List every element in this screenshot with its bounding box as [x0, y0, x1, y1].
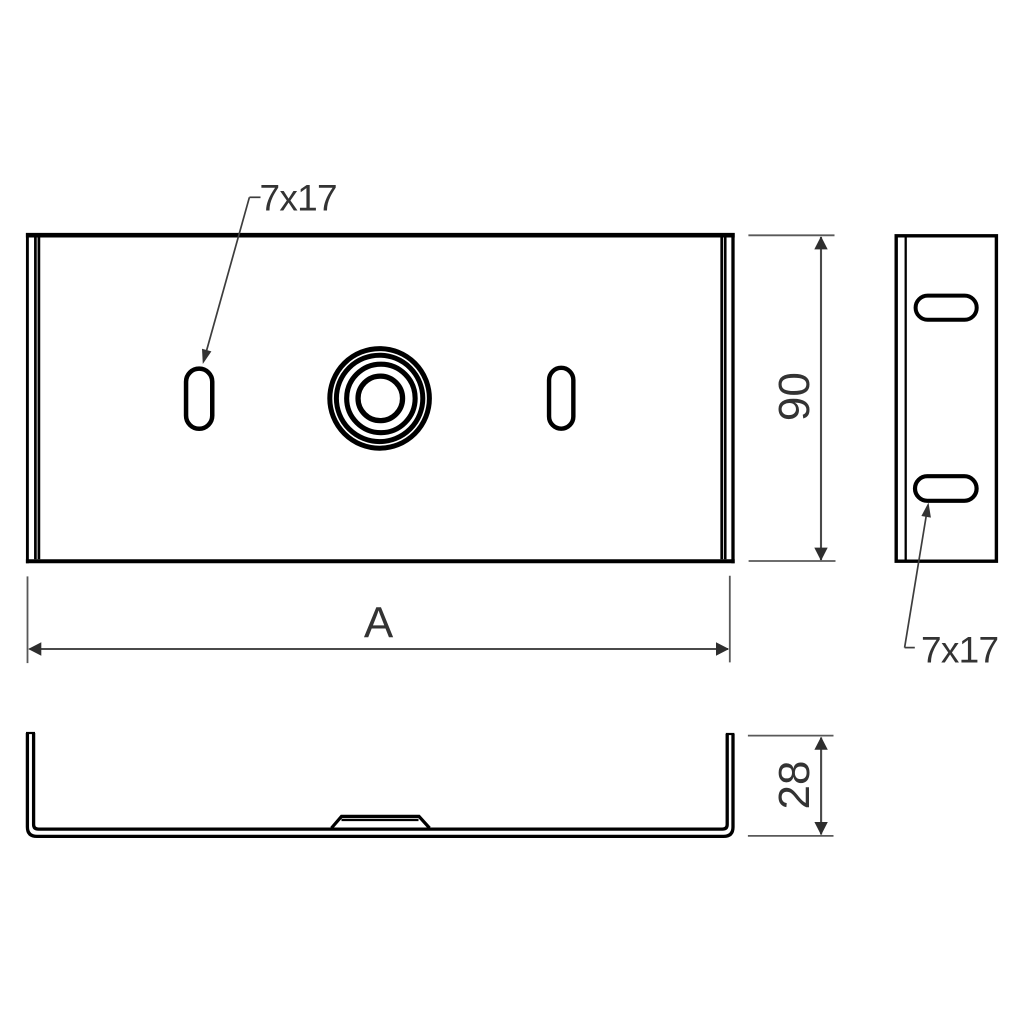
svg-text:28: 28: [770, 761, 819, 810]
svg-text:7x17: 7x17: [260, 178, 337, 219]
svg-text:7x17: 7x17: [921, 630, 998, 671]
svg-text:A: A: [364, 599, 394, 648]
svg-text:90: 90: [770, 372, 819, 421]
